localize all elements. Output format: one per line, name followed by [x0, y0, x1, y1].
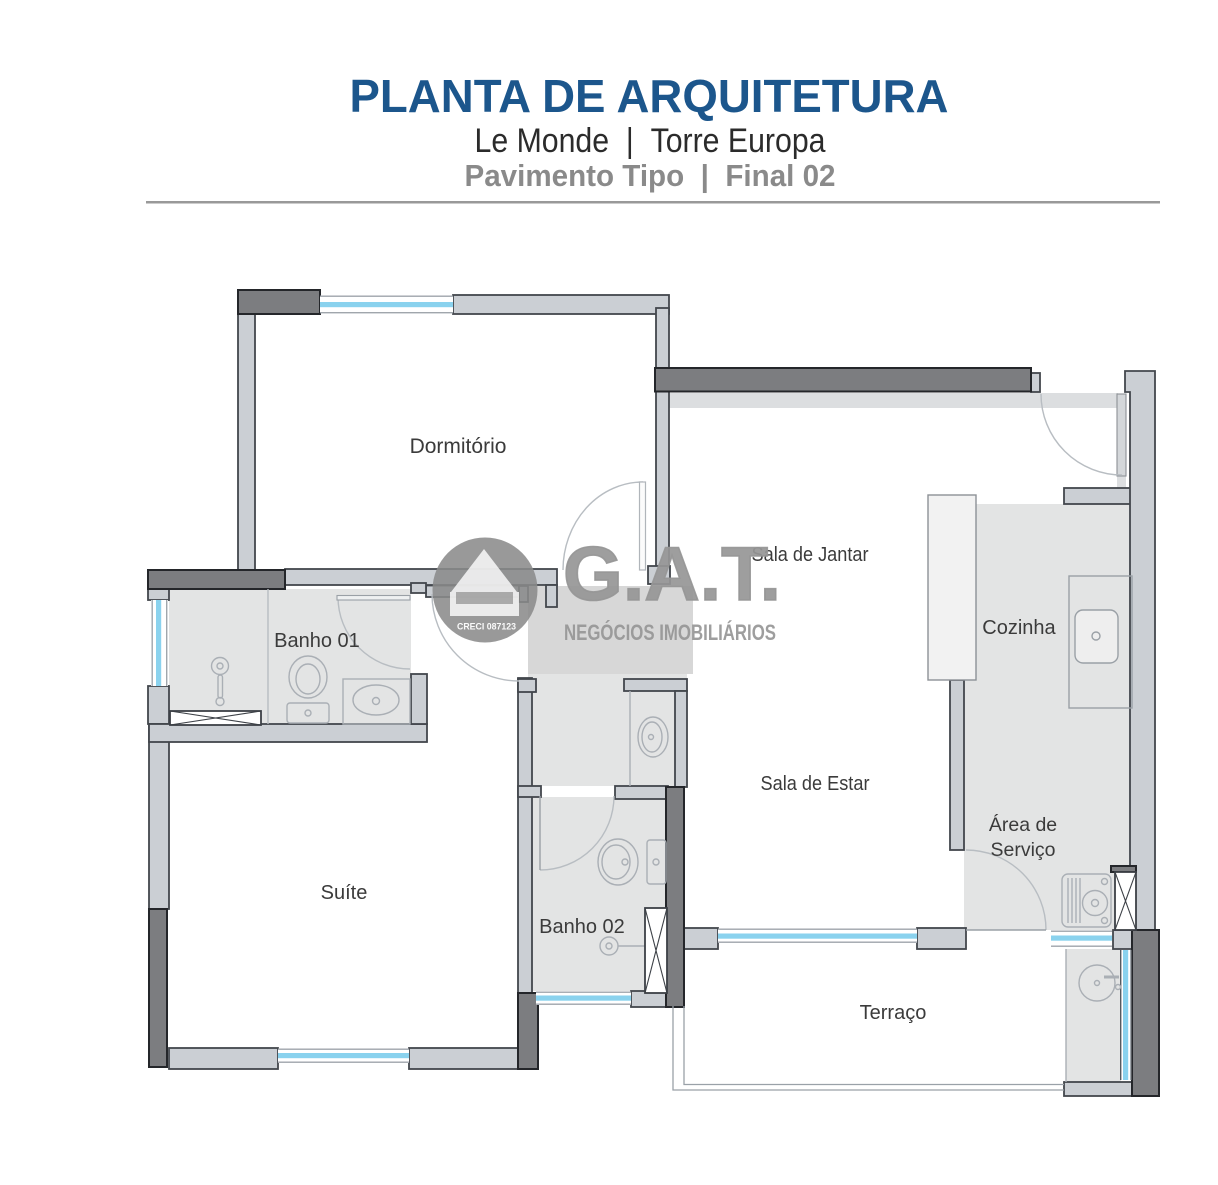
- svg-text:Banho 02: Banho 02: [539, 916, 625, 938]
- svg-text:Serviço: Serviço: [990, 839, 1055, 861]
- svg-text:NEGÓCIOS IMOBILIÁRIOS: NEGÓCIOS IMOBILIÁRIOS: [564, 620, 776, 645]
- svg-text:Sala de Estar: Sala de Estar: [761, 773, 870, 795]
- svg-text:G.A.T.: G.A.T.: [563, 532, 781, 617]
- svg-text:Le Monde | Torre Europa: Le Monde | Torre Europa: [475, 122, 826, 160]
- svg-text:Suíte: Suíte: [321, 882, 368, 904]
- svg-text:Cozinha: Cozinha: [982, 617, 1056, 639]
- svg-text:Dormitório: Dormitório: [410, 435, 507, 458]
- svg-text:CRECI 087123: CRECI 087123: [457, 622, 516, 633]
- svg-text:Banho 01: Banho 01: [274, 630, 360, 652]
- svg-text:PLANTA DE ARQUITETURA: PLANTA DE ARQUITETURA: [350, 70, 949, 122]
- svg-text:Área de: Área de: [989, 813, 1057, 836]
- svg-text:Pavimento Tipo | Final 02: Pavimento Tipo | Final 02: [465, 158, 836, 193]
- svg-text:Terraço: Terraço: [860, 1002, 927, 1024]
